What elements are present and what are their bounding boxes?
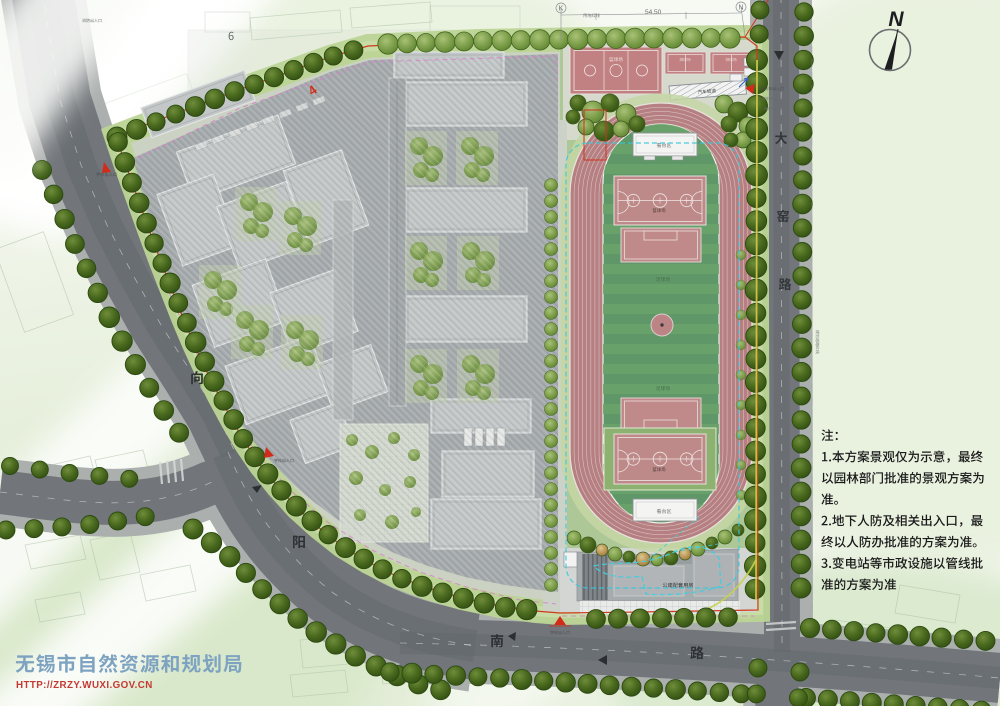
svg-text:N: N	[888, 8, 904, 31]
svg-text:N: N	[738, 5, 743, 12]
svg-text:K: K	[559, 6, 564, 13]
svg-text:HTTP://ZRZY.WUXI.GOV.CN: HTTP://ZRZY.WUXI.GOV.CN	[16, 680, 153, 691]
svg-text:54.50: 54.50	[645, 9, 662, 16]
